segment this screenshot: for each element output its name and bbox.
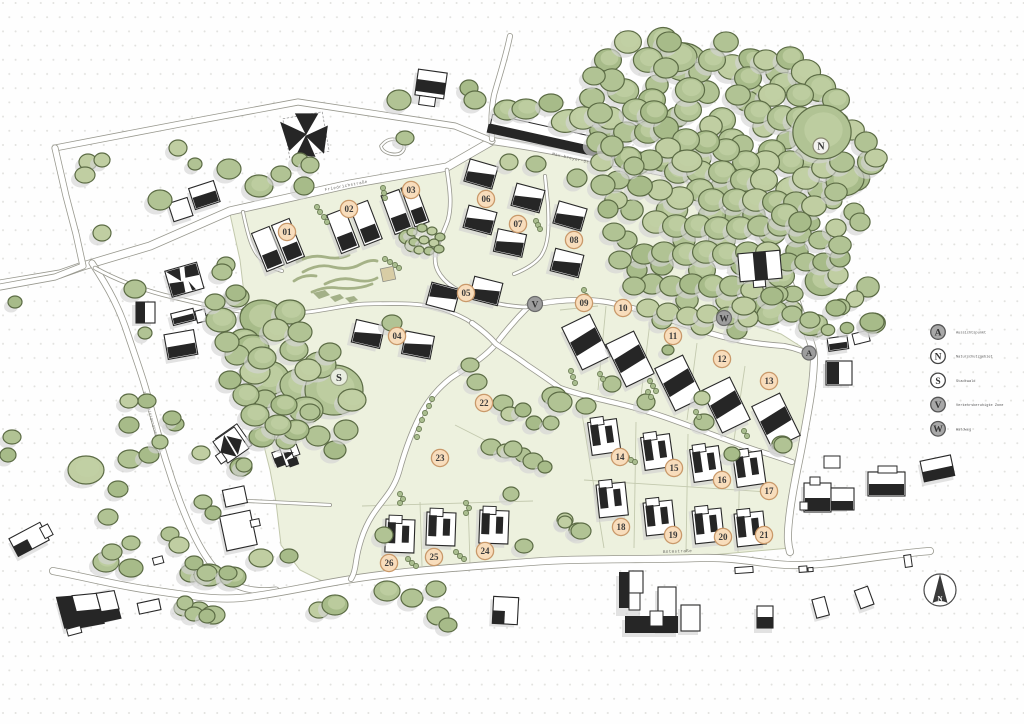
svg-text:01: 01: [283, 227, 293, 237]
svg-text:06: 06: [482, 194, 492, 204]
svg-text:16: 16: [718, 475, 728, 485]
svg-text:Verkehrsberuhigte Zone: Verkehrsberuhigte Zone: [956, 403, 1003, 408]
svg-text:05: 05: [462, 288, 472, 298]
svg-text:N: N: [937, 595, 942, 603]
svg-text:07: 07: [514, 219, 524, 229]
svg-text:10: 10: [619, 303, 629, 313]
svg-text:A: A: [806, 348, 813, 358]
svg-text:13: 13: [765, 376, 775, 386]
svg-text:W: W: [933, 425, 943, 435]
svg-text:Bötmstraße: Bötmstraße: [663, 549, 692, 555]
svg-text:04: 04: [393, 331, 403, 341]
svg-text:09: 09: [580, 298, 590, 308]
svg-text:Naturschutzgebiet: Naturschutzgebiet: [956, 355, 993, 360]
svg-text:12: 12: [718, 354, 728, 364]
svg-text:N: N: [935, 353, 942, 363]
svg-text:S: S: [935, 377, 940, 387]
svg-text:14: 14: [616, 452, 626, 462]
svg-text:08: 08: [570, 235, 580, 245]
svg-text:03: 03: [407, 185, 417, 195]
svg-text:21: 21: [760, 530, 770, 540]
svg-text:V: V: [935, 401, 942, 411]
svg-text:V: V: [532, 300, 539, 310]
svg-text:02: 02: [345, 204, 355, 214]
svg-text:Waldweg: Waldweg: [956, 427, 971, 432]
svg-text:19: 19: [669, 530, 679, 540]
svg-text:25: 25: [430, 552, 440, 562]
svg-text:W: W: [719, 314, 729, 324]
svg-text:20: 20: [719, 532, 729, 542]
svg-text:15: 15: [670, 463, 680, 473]
svg-text:24: 24: [481, 546, 491, 556]
svg-text:N: N: [817, 142, 825, 153]
svg-text:Aussichtspunkt: Aussichtspunkt: [956, 331, 986, 336]
svg-text:23: 23: [436, 453, 446, 463]
svg-text:A: A: [935, 328, 942, 338]
svg-text:S: S: [336, 373, 342, 384]
svg-text:17: 17: [765, 486, 775, 496]
svg-text:22: 22: [480, 398, 490, 408]
svg-text:18: 18: [617, 522, 627, 532]
svg-text:26: 26: [385, 558, 395, 568]
svg-text:11: 11: [669, 331, 678, 341]
svg-text:Stadtwald: Stadtwald: [956, 379, 975, 384]
